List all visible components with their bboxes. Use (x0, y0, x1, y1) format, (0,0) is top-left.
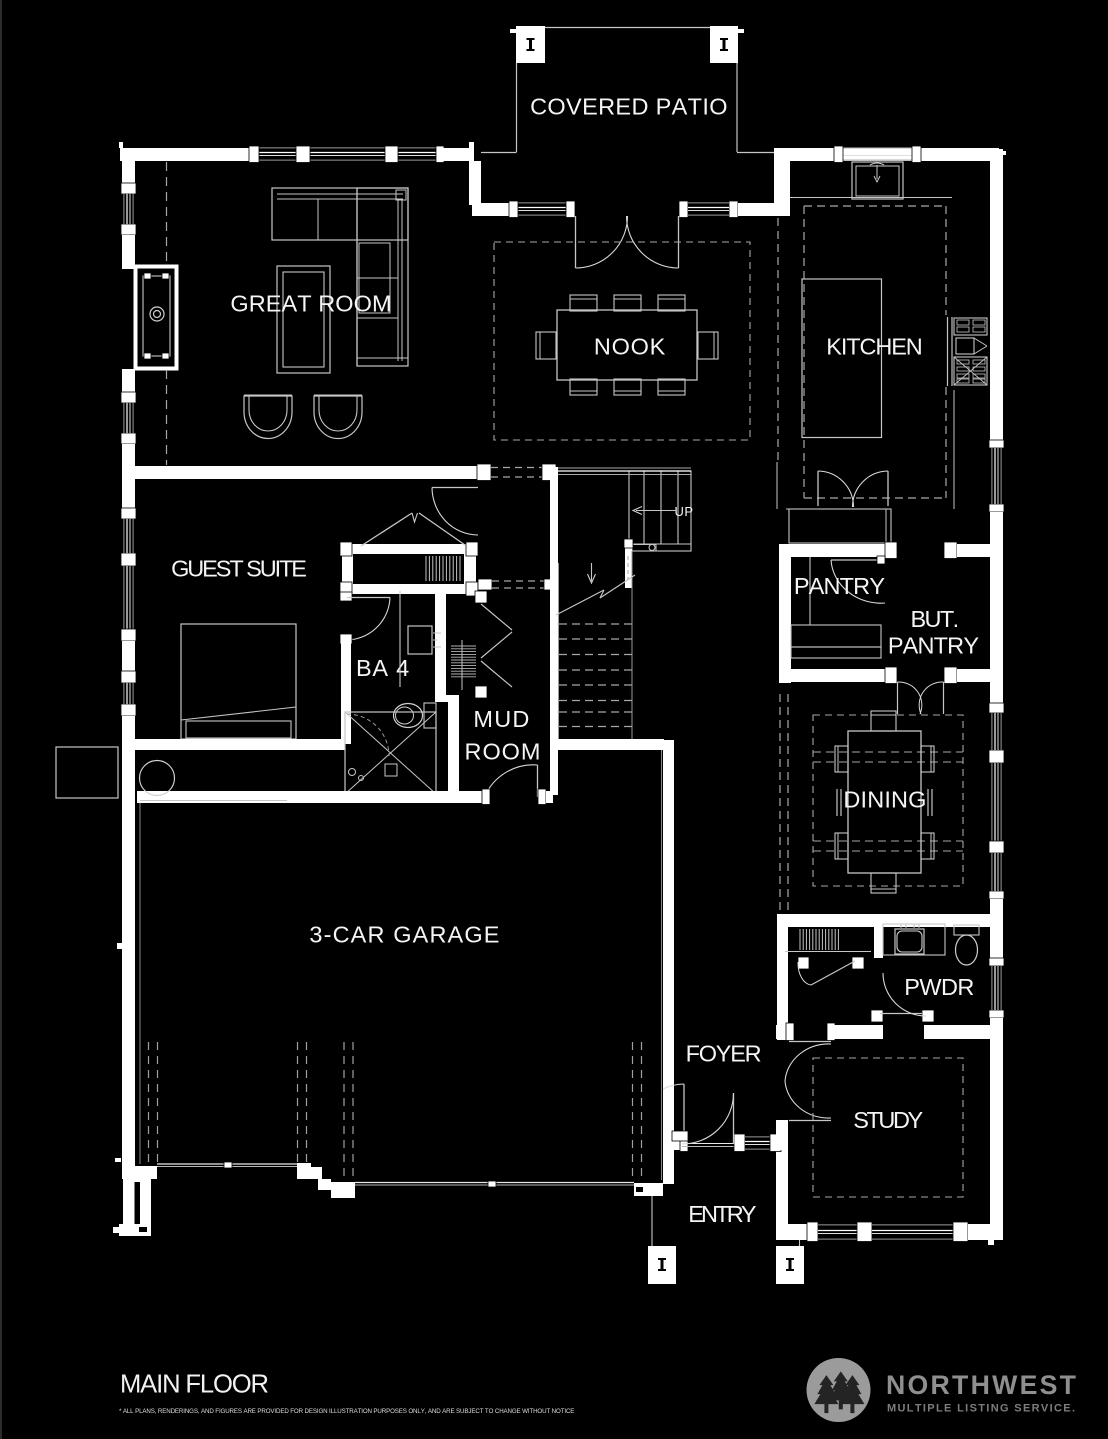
svg-text:ROOM: ROOM (465, 739, 542, 765)
svg-text:ENTRY: ENTRY (688, 1201, 757, 1227)
svg-text:MAIN FLOOR: MAIN FLOOR (120, 1371, 269, 1399)
svg-text:3-CAR GARAGE: 3-CAR GARAGE (309, 922, 500, 948)
svg-text:KITCHEN: KITCHEN (826, 333, 922, 359)
svg-text:MUD: MUD (473, 706, 530, 732)
svg-text:PWDR: PWDR (904, 974, 973, 1000)
svg-text:COVERED PATIO: COVERED PATIO (530, 94, 728, 120)
svg-text:GREAT ROOM: GREAT ROOM (230, 291, 391, 317)
svg-text:GUEST SUITE: GUEST SUITE (171, 556, 306, 582)
svg-text:BA 4: BA 4 (356, 655, 410, 681)
svg-text:NOOK: NOOK (594, 333, 666, 359)
svg-text:MULTIPLE LISTING SERVICE.: MULTIPLE LISTING SERVICE. (887, 1402, 1076, 1414)
svg-text:NORTHWEST: NORTHWEST (886, 1370, 1078, 1400)
svg-text:* ALL PLANS, RENDERINGS, AND F: * ALL PLANS, RENDERINGS, AND FIGURES ARE… (119, 1408, 574, 1415)
svg-text:DINING: DINING (843, 787, 926, 813)
svg-text:PANTRY: PANTRY (888, 633, 979, 659)
svg-text:STUDY: STUDY (853, 1107, 923, 1133)
svg-text:FOYER: FOYER (686, 1041, 761, 1067)
svg-text:UP: UP (674, 504, 693, 519)
svg-text:BUT.: BUT. (911, 606, 958, 632)
svg-text:PANTRY: PANTRY (794, 573, 885, 599)
